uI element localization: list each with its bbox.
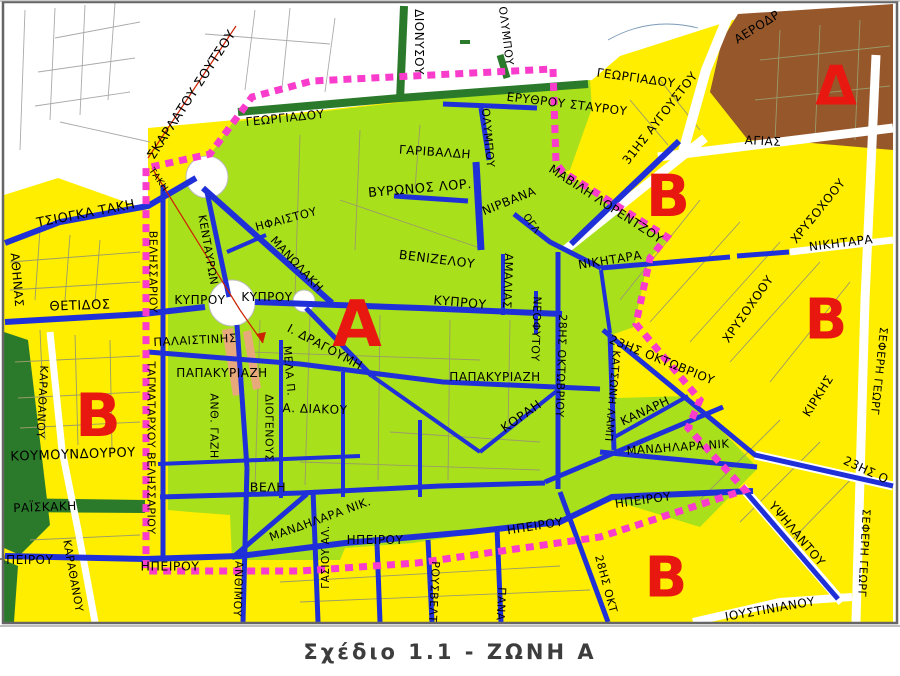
street-label: ΠΑΝΑ [494,587,509,621]
zone-letter: Β [645,546,688,611]
zone-letter: Α [332,288,382,362]
map-canvas: ΣΚΑΡΛΑΤΟΥ ΣΟΥΤΣΟΥΓΕΩΡΓΙΑΔΟΥΔΙΟΝΥΣΟΥΟΛΥΜΠ… [0,0,900,628]
zone-letter: Β [805,288,848,353]
street-label: ΑΝΘ. ΓΑΖΗ [208,393,221,458]
caption-bar: Σχέδιο 1.1 - ΖΩΝΗ Α [0,628,900,676]
street-label: ΝΕΟΦΥΤΟΥ [528,296,543,362]
street-label: ΘΕΤΙΔΟΣ [49,297,111,314]
street-label: ΠΑΠΑΚΥΡΙΑΖΗ [449,370,540,384]
street-label: ΑΜΑΛΙΑΣ [500,253,516,309]
zone-plan-figure: ΣΚΑΡΛΑΤΟΥ ΣΟΥΤΣΟΥΓΕΩΡΓΙΑΔΟΥΔΙΟΝΥΣΟΥΟΛΥΜΠ… [0,0,900,676]
figure-caption: Σχέδιο 1.1 - ΖΩΝΗ Α [303,640,596,664]
street-label: ΗΠΕΙΡΟΥ [347,533,404,547]
street-label: ΔΙΟΝΥΣΟΥ [412,9,426,75]
zone-letter: Β [75,381,121,451]
zone-letter: Β [646,162,690,230]
street-label: ΗΠΕΙΡΟΥ [141,559,200,574]
street-label: Α. ΔΙΑΚΟΥ [282,401,348,417]
street-label: ΤΑΓΜΑΤΑΡΧΟΥ ΒΕΛΗΣΣΑΡΙΟΥ [145,360,158,534]
street-label: ΔΙΟΓΕΝΟΥΣ [263,394,276,462]
street-label: ΠΑΠΑΚΥΡΙΑΖΗ [176,366,267,380]
street-label: ΚΥΠΡΟΥ [174,293,225,307]
street-label: ΒΕΛΗ [250,480,286,495]
zone-letter: Δ [815,55,857,118]
city-zone-map: ΣΚΑΡΛΑΤΟΥ ΣΟΥΤΣΟΥΓΕΩΡΓΙΑΔΟΥΔΙΟΝΥΣΟΥΟΛΥΜΠ… [0,0,900,628]
street-label: ΓΑΣΙΟΥ ΑΛ. [320,525,332,588]
street-label: ΗΠΕΙΡΟΥ [0,553,54,567]
street-label: ΚΥΠΡΟΥ [241,290,292,304]
street-label: ΒΕΛΗΣΣΑΡΙΟΥ [147,231,160,313]
street-label: ΡΑΪΣΚΑΚΗ [13,498,77,515]
street-label: ΑΝΘΙΜΟΥ [231,561,246,617]
street-label: ΑΓΙΑΣ [744,133,781,149]
